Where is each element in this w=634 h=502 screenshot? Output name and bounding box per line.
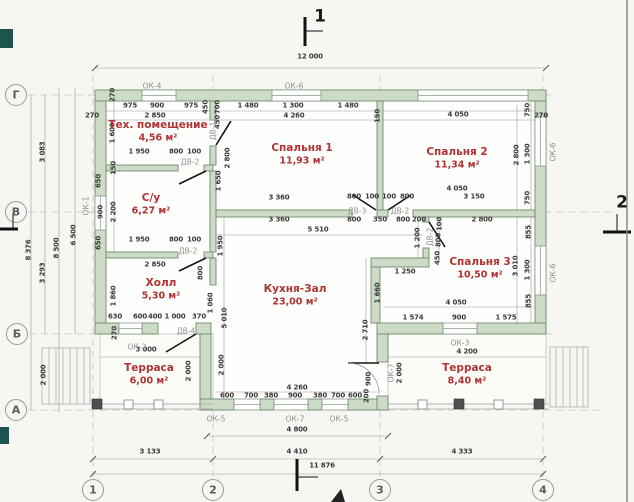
- dimension-label: 800: [396, 217, 410, 224]
- dimension-label: 100: [187, 237, 201, 244]
- dimension-label: 1 200: [415, 228, 422, 249]
- dimension-label: 100: [187, 149, 201, 156]
- dimension-label: 100: [437, 217, 444, 231]
- dimension-label: 4 050: [446, 300, 467, 307]
- opening-tag: ОК-1: [82, 197, 90, 216]
- dimension-label: 150: [375, 109, 382, 123]
- dimension-label: 3 083: [40, 142, 47, 163]
- dimension-label: 2 800: [514, 145, 521, 166]
- dimension-label: 2 000: [219, 355, 226, 376]
- dimension-label: 4 260: [287, 385, 308, 392]
- dimension-label: 8 500: [54, 238, 61, 259]
- dimension-label: 400: [148, 314, 162, 321]
- opening-tag: ОК-5: [330, 415, 349, 423]
- dimension-label: 1 660: [375, 283, 382, 304]
- axis-marker-label: 4: [539, 485, 547, 496]
- dimension-label: 270: [534, 113, 548, 120]
- dimension-label: 3 150: [464, 194, 485, 201]
- opening-tag: ОК-5: [207, 415, 226, 423]
- room-area: 6,27 м²: [132, 206, 171, 216]
- dimension-label: 900: [452, 315, 466, 322]
- opening-tag: ОК-3: [451, 339, 470, 347]
- dimension-label: 700: [244, 393, 258, 400]
- dimension-label: 2 850: [145, 262, 166, 269]
- section-number: 2: [616, 195, 628, 212]
- floor-plan: 12 0009759009754507004501 4801 3001 4802…: [0, 0, 634, 502]
- dimension-label: 100: [382, 194, 396, 201]
- dimension-label: 2 800: [225, 148, 232, 169]
- dimension-label: 380: [313, 393, 327, 400]
- dimension-label: 900: [98, 205, 105, 219]
- dimension-label: 200: [364, 389, 371, 403]
- room-name: Холл: [146, 278, 177, 289]
- dimension-label: 1 000: [165, 314, 186, 321]
- dimension-label: 5 010: [222, 308, 229, 329]
- opening-tag: ДВ-2: [426, 228, 434, 246]
- dimension-label: 700: [215, 100, 222, 114]
- dimension-label: 1 950: [129, 149, 150, 156]
- dimension-label: 2 000: [186, 361, 193, 382]
- dimension-label: 600: [348, 393, 362, 400]
- dimension-label: 975: [184, 103, 198, 110]
- room-area: 6,00 м²: [130, 376, 169, 386]
- dimension-label: 380: [264, 393, 278, 400]
- axis-marker-label: В: [12, 207, 20, 218]
- dimension-label: 12 000: [297, 54, 323, 61]
- dimension-label: 6 500: [71, 225, 78, 246]
- dimension-label: 900: [288, 393, 302, 400]
- dimension-label: 3 360: [269, 195, 290, 202]
- dimension-label: 350: [373, 217, 387, 224]
- room-area: 4,56 м²: [139, 133, 178, 143]
- dimension-label: 4 410: [287, 449, 308, 456]
- dimension-label: 3 133: [140, 449, 161, 456]
- dimension-label: 750: [525, 191, 532, 205]
- room-name: Тех. помещение: [108, 120, 207, 131]
- room-area: 5,30 м²: [142, 291, 181, 301]
- dimension-label: 2 710: [363, 320, 370, 341]
- axis-marker-label: 3: [376, 485, 384, 496]
- dimension-label: 1 250: [395, 269, 416, 276]
- dimension-label: 2 000: [41, 365, 48, 386]
- room-area: 11,34 м²: [434, 160, 479, 170]
- dimension-label: 2 200: [111, 202, 118, 223]
- dimension-label: 800: [347, 217, 361, 224]
- room-area: 8,40 м²: [448, 376, 487, 386]
- dimension-label: 4 260: [284, 113, 305, 120]
- dimension-label: 100: [365, 194, 379, 201]
- dimension-label: 1 480: [338, 103, 359, 110]
- dimension-label: 650: [96, 174, 103, 188]
- dimension-label: 3 293: [40, 263, 47, 284]
- dimension-label: 270: [112, 326, 119, 340]
- room-area: 23,00 м²: [272, 297, 317, 307]
- room-name: Спальня 1: [271, 143, 332, 154]
- dimension-label: 600: [133, 314, 147, 321]
- opening-tag: ОК-7: [387, 364, 395, 383]
- dimension-label: 855: [526, 225, 533, 239]
- opening-tag: ДВ-2: [391, 207, 409, 215]
- room-name: Терраса: [124, 363, 174, 374]
- dimension-label: 650: [96, 236, 103, 250]
- dimension-label: 975: [123, 103, 137, 110]
- dimension-label: 800: [169, 237, 183, 244]
- axis-marker-label: 2: [209, 485, 217, 496]
- dimension-label: 1 575: [496, 315, 517, 322]
- dimension-label: 450: [435, 251, 442, 265]
- dimension-label: 900: [150, 103, 164, 110]
- opening-tag: ОК-6: [285, 82, 304, 90]
- room-name: Кухня-Зал: [264, 284, 327, 295]
- dimension-label: 4 050: [447, 186, 468, 193]
- axis-marker-label: Б: [13, 329, 21, 340]
- dimension-label: 1 950: [129, 237, 150, 244]
- opening-tag: ДВ-2: [179, 247, 197, 255]
- dimension-label: 1 300: [525, 144, 532, 165]
- dimension-label: 370: [192, 314, 206, 321]
- room-name: Спальня 3: [449, 257, 510, 268]
- dimension-label: 1 060: [208, 293, 215, 314]
- opening-tag: ДВ-1: [209, 122, 217, 140]
- dimension-label: 1 860: [111, 286, 118, 307]
- dimension-label: 5 510: [308, 227, 329, 234]
- dimension-label: 4 333: [452, 449, 473, 456]
- room-name: Спальня 2: [426, 147, 487, 158]
- room-area: 11,93 м²: [279, 156, 324, 166]
- opening-tag: ОК-4: [143, 82, 162, 90]
- dimension-label: 1 574: [403, 315, 424, 322]
- dimension-label: 800: [169, 149, 183, 156]
- dimension-label: 855: [526, 294, 533, 308]
- dimension-label: 200: [412, 217, 426, 224]
- dimension-label: 800: [436, 233, 443, 247]
- dimension-label: 1 480: [238, 103, 259, 110]
- opening-tag: ДВ-2: [181, 158, 199, 166]
- opening-tag: ДВ-3: [348, 207, 366, 215]
- dimension-label: 800: [347, 194, 361, 201]
- section-number: 1: [314, 9, 326, 26]
- labels-layer: 12 0009759009754507004501 4801 3001 4802…: [0, 0, 634, 502]
- dimension-label: 1 300: [283, 103, 304, 110]
- room-area: 10,50 м²: [457, 270, 502, 280]
- dimension-label: 800: [198, 266, 205, 280]
- dimension-label: 3 360: [269, 217, 290, 224]
- dimension-label: 4 800: [287, 427, 308, 434]
- dimension-label: 2 800: [472, 217, 493, 224]
- dimension-label: 3 010: [513, 256, 520, 277]
- dimension-label: 150: [111, 161, 118, 175]
- dimension-label: 700: [331, 393, 345, 400]
- dimension-label: 2 000: [397, 363, 404, 384]
- dimension-label: 450: [203, 100, 210, 114]
- dimension-label: 4 200: [457, 349, 478, 356]
- axis-marker-label: 1: [89, 485, 97, 496]
- dimension-label: 1 650: [216, 171, 223, 192]
- dimension-label: 1 300: [525, 260, 532, 281]
- axis-marker-label: Г: [12, 90, 19, 101]
- room-name: Терраса: [442, 363, 492, 374]
- dimension-label: 8 376: [26, 240, 33, 261]
- dimension-label: 4 050: [448, 112, 469, 119]
- dimension-label: 270: [85, 113, 99, 120]
- dimension-label: 1 950: [218, 236, 225, 257]
- dimension-label: 600: [220, 393, 234, 400]
- opening-tag: ОК-2: [128, 343, 147, 351]
- axis-marker-label: А: [12, 405, 21, 416]
- opening-tag: ОК-7: [286, 415, 305, 423]
- opening-tag: ОК-6: [549, 143, 557, 162]
- dimension-label: 270: [110, 88, 117, 102]
- dimension-label: 800: [400, 194, 414, 201]
- dimension-label: 630: [108, 314, 122, 321]
- room-name: С/у: [142, 193, 160, 204]
- dimension-label: 750: [525, 103, 532, 117]
- opening-tag: ОК-6: [549, 264, 557, 283]
- dimension-label: 11 876: [309, 463, 335, 470]
- dimension-label: 900: [366, 372, 373, 386]
- opening-tag: ДВ-4: [177, 327, 195, 335]
